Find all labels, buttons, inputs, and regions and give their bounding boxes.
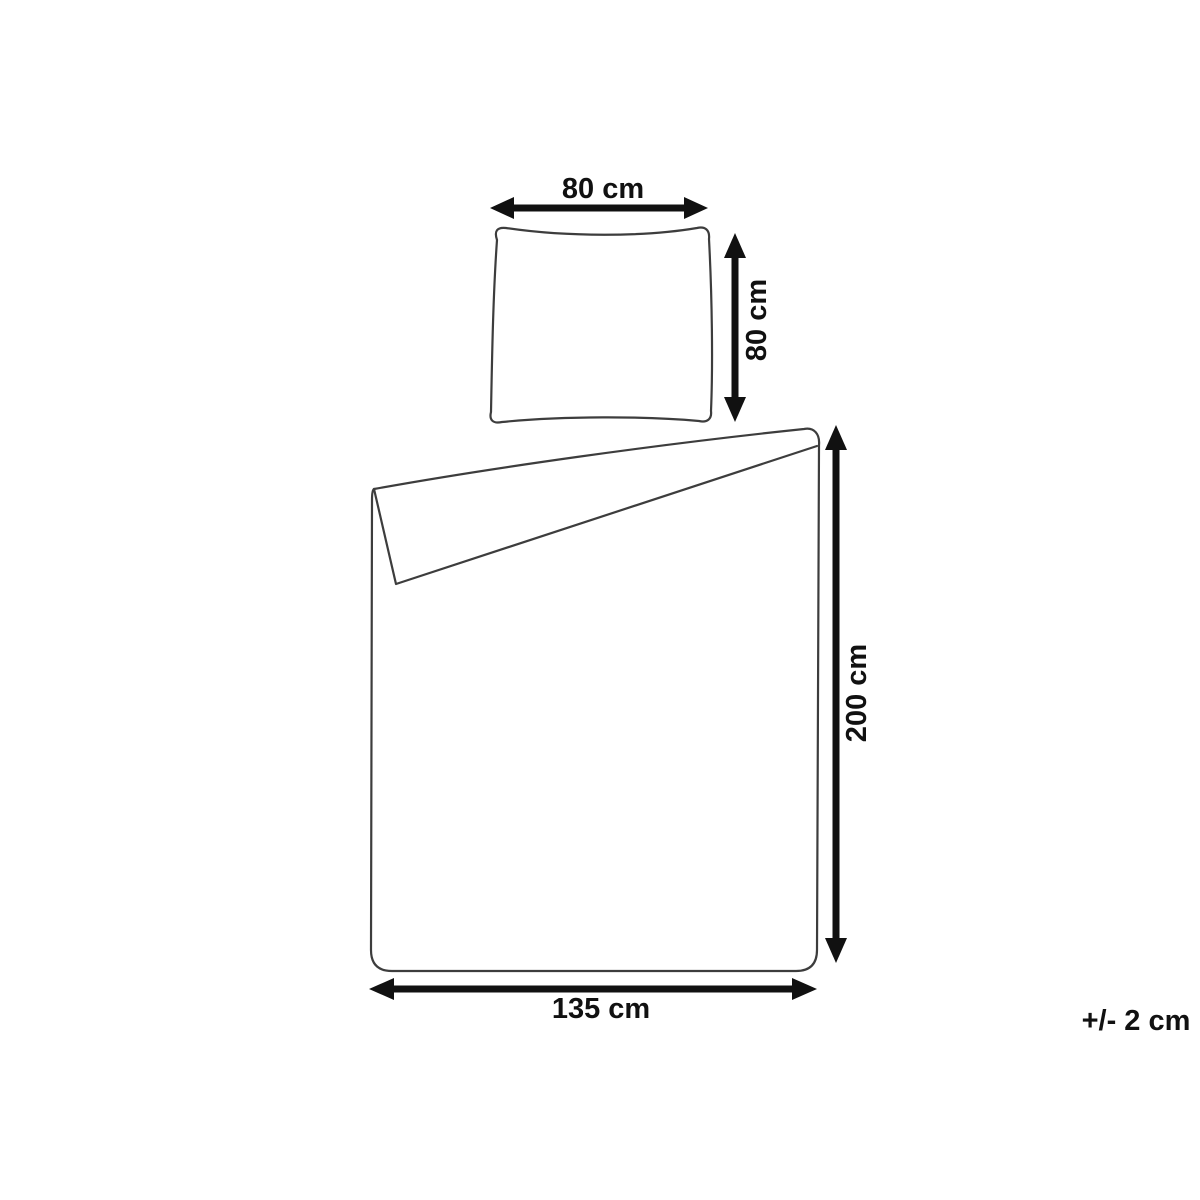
pillow-height-arrowhead-bottom (724, 397, 746, 422)
pillow-height-arrowhead-top (724, 233, 746, 258)
pillow-height-dimension: 80 cm (724, 233, 773, 422)
pillow-width-arrowhead-left (490, 197, 514, 219)
duvet-cover-group (371, 429, 819, 971)
duvet-height-label: 200 cm (841, 644, 873, 742)
duvet-outline (371, 429, 819, 971)
duvet-height-arrowhead-bottom (825, 938, 847, 963)
pillow-width-arrowhead-right (684, 197, 708, 219)
pillowcase-group (490, 227, 712, 422)
bedding-dimensions-diagram: 80 cm 80 cm 200 cm 135 cm +/- 2 cm (0, 0, 1200, 1200)
tolerance-note: +/- 2 cm (1082, 1005, 1191, 1037)
pillow-height-label: 80 cm (741, 279, 773, 361)
duvet-height-arrowhead-top (825, 425, 847, 450)
duvet-height-dimension: 200 cm (825, 425, 873, 963)
duvet-fold-line (374, 446, 817, 584)
duvet-width-arrowhead-right (792, 978, 817, 1000)
pillowcase-outline (490, 227, 712, 422)
duvet-width-arrowhead-left (369, 978, 394, 1000)
diagram-svg: 80 cm 80 cm 200 cm 135 cm +/- 2 cm (0, 0, 1200, 1200)
pillow-width-label: 80 cm (562, 173, 644, 205)
duvet-width-label: 135 cm (552, 993, 650, 1025)
pillow-width-dimension: 80 cm (490, 173, 708, 219)
duvet-width-dimension: 135 cm (369, 978, 817, 1025)
